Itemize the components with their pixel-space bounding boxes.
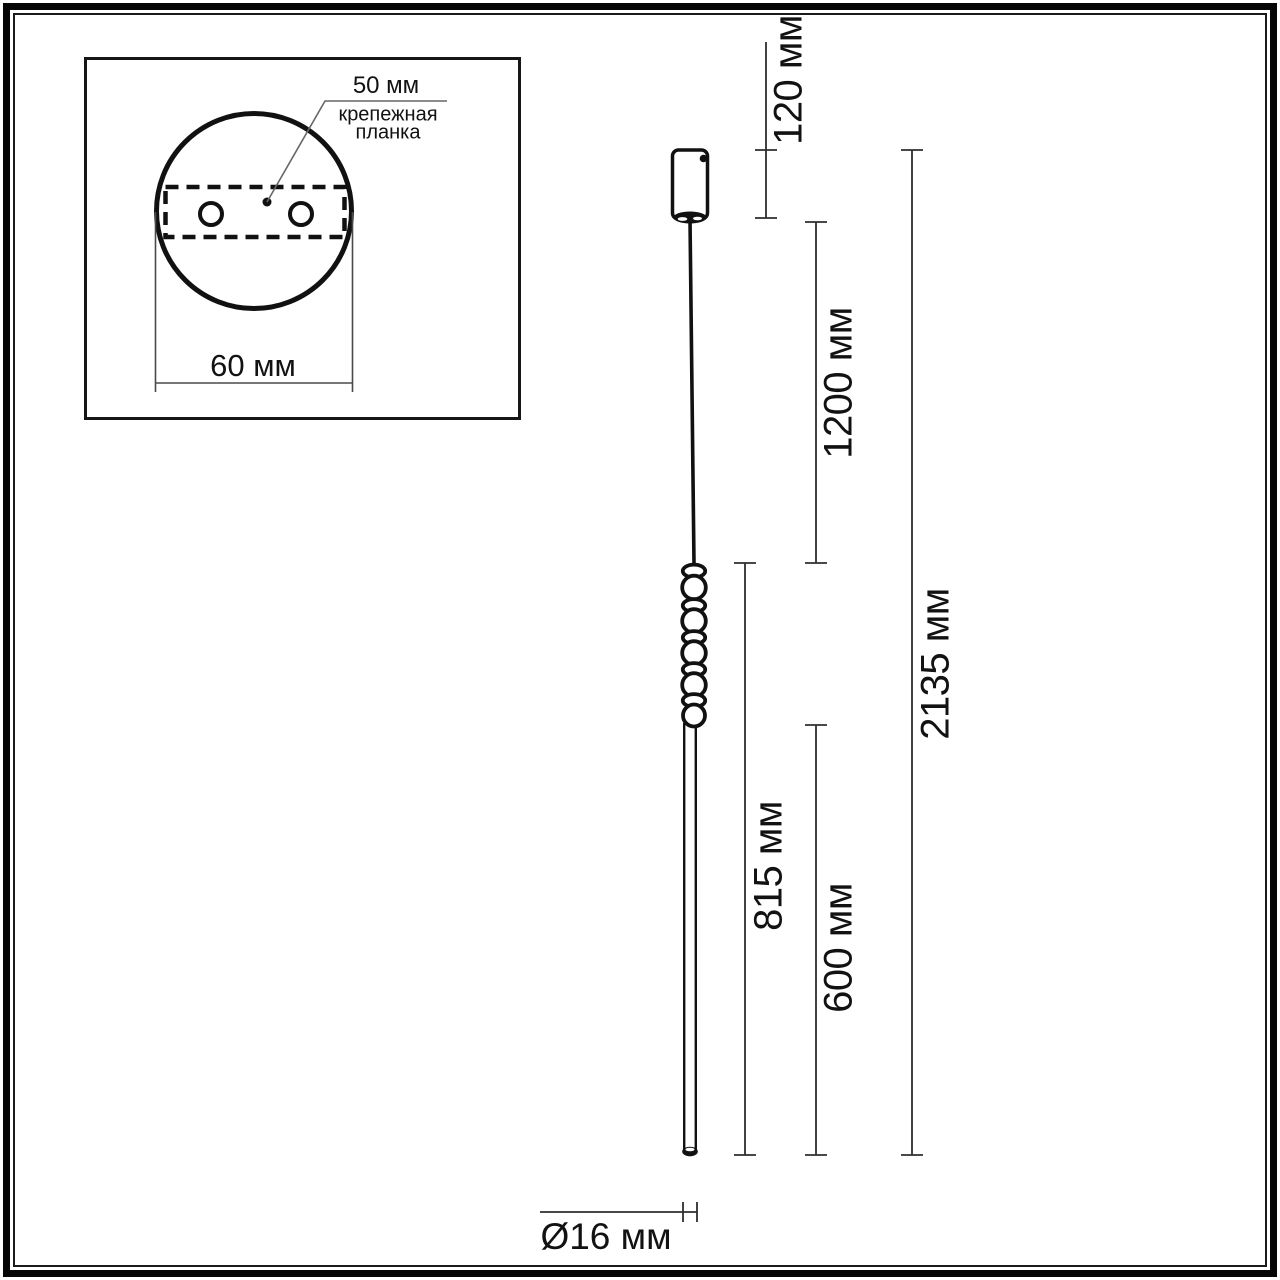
lamp-dimension-drawing <box>0 0 1280 1280</box>
suspension-cable <box>690 219 694 564</box>
mounting-plate-dashed-outline <box>166 187 345 237</box>
fixture-length-label: 815 мм <box>747 801 792 931</box>
bead-stack <box>682 565 706 727</box>
mounting-detail-group <box>156 101 448 392</box>
canopy-top-view-circle <box>157 114 352 309</box>
tube-end-cap-highlight <box>685 1148 694 1151</box>
canopy-bottom-rim <box>674 212 707 224</box>
light-tube <box>684 723 696 1150</box>
pendant-lamp-group <box>673 150 708 1156</box>
bead-round-5 <box>683 705 705 727</box>
hole-spacing-label: 50 мм <box>353 72 419 100</box>
canopy-rim-highlight-right <box>693 217 702 220</box>
tube-length-label: 600 мм <box>817 883 862 1013</box>
mounting-hole-right <box>290 203 312 225</box>
canopy-height-label: 120 мм <box>767 15 812 145</box>
diameter-label: Ø16 мм <box>540 1216 671 1258</box>
plate-width-label: 60 мм <box>210 348 296 384</box>
suspension-length-label: 1200 мм <box>817 307 862 459</box>
mounting-hole-left <box>200 203 222 225</box>
bead-round-1 <box>682 576 706 600</box>
dimension-lines-group <box>540 42 923 1222</box>
canopy-rim-highlight-left <box>678 217 688 221</box>
technical-drawing-page: { "inset": { "hole_spacing_label": "50 м… <box>0 0 1280 1280</box>
canopy-screw <box>700 155 708 163</box>
overall-height-label: 2135 мм <box>914 588 959 740</box>
mounting-plate-label: крепежная планка <box>324 106 452 143</box>
